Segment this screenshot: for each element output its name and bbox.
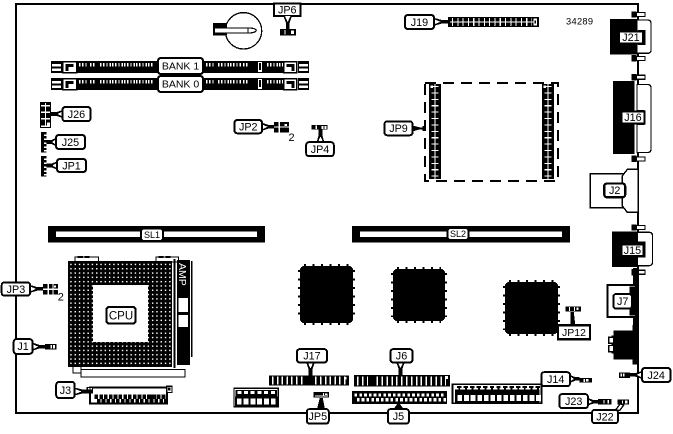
- svg-text:JP2: JP2: [239, 121, 258, 133]
- svg-text:J7: J7: [617, 296, 628, 308]
- svg-text:JP4: JP4: [311, 144, 330, 156]
- svg-text:J14: J14: [547, 374, 564, 386]
- svg-text:BANK 0: BANK 0: [162, 79, 200, 91]
- svg-text:SL1: SL1: [144, 230, 160, 240]
- svg-text:J16: J16: [624, 112, 641, 124]
- svg-text:JP9: JP9: [389, 123, 408, 135]
- svg-text:JP12: JP12: [562, 327, 586, 339]
- svg-text:CPU: CPU: [109, 310, 133, 322]
- svg-text:J22: J22: [596, 411, 613, 423]
- svg-text:J24: J24: [648, 370, 665, 382]
- svg-text:J6: J6: [396, 351, 407, 363]
- svg-text:2: 2: [58, 292, 64, 304]
- svg-text:J21: J21: [622, 32, 639, 44]
- svg-text:J23: J23: [565, 396, 582, 408]
- svg-text:J26: J26: [68, 109, 85, 121]
- svg-text:BANK 1: BANK 1: [162, 61, 200, 73]
- svg-text:J19: J19: [411, 17, 428, 29]
- svg-text:JP3: JP3: [7, 284, 26, 296]
- svg-text:34289: 34289: [566, 17, 593, 27]
- svg-text:JP1: JP1: [62, 160, 81, 172]
- svg-text:J3: J3: [60, 385, 71, 397]
- svg-text:JP6: JP6: [278, 5, 297, 17]
- svg-text:2: 2: [289, 132, 295, 144]
- svg-text:J25: J25: [62, 137, 79, 149]
- svg-text:JP5: JP5: [308, 411, 327, 423]
- svg-text:J15: J15: [624, 245, 641, 257]
- svg-text:AMP: AMP: [176, 263, 188, 286]
- svg-text:J1: J1: [17, 341, 28, 353]
- svg-text:J2: J2: [609, 185, 620, 197]
- svg-text:SL2: SL2: [450, 229, 466, 239]
- svg-text:J5: J5: [393, 411, 404, 423]
- svg-text:J17: J17: [303, 351, 320, 363]
